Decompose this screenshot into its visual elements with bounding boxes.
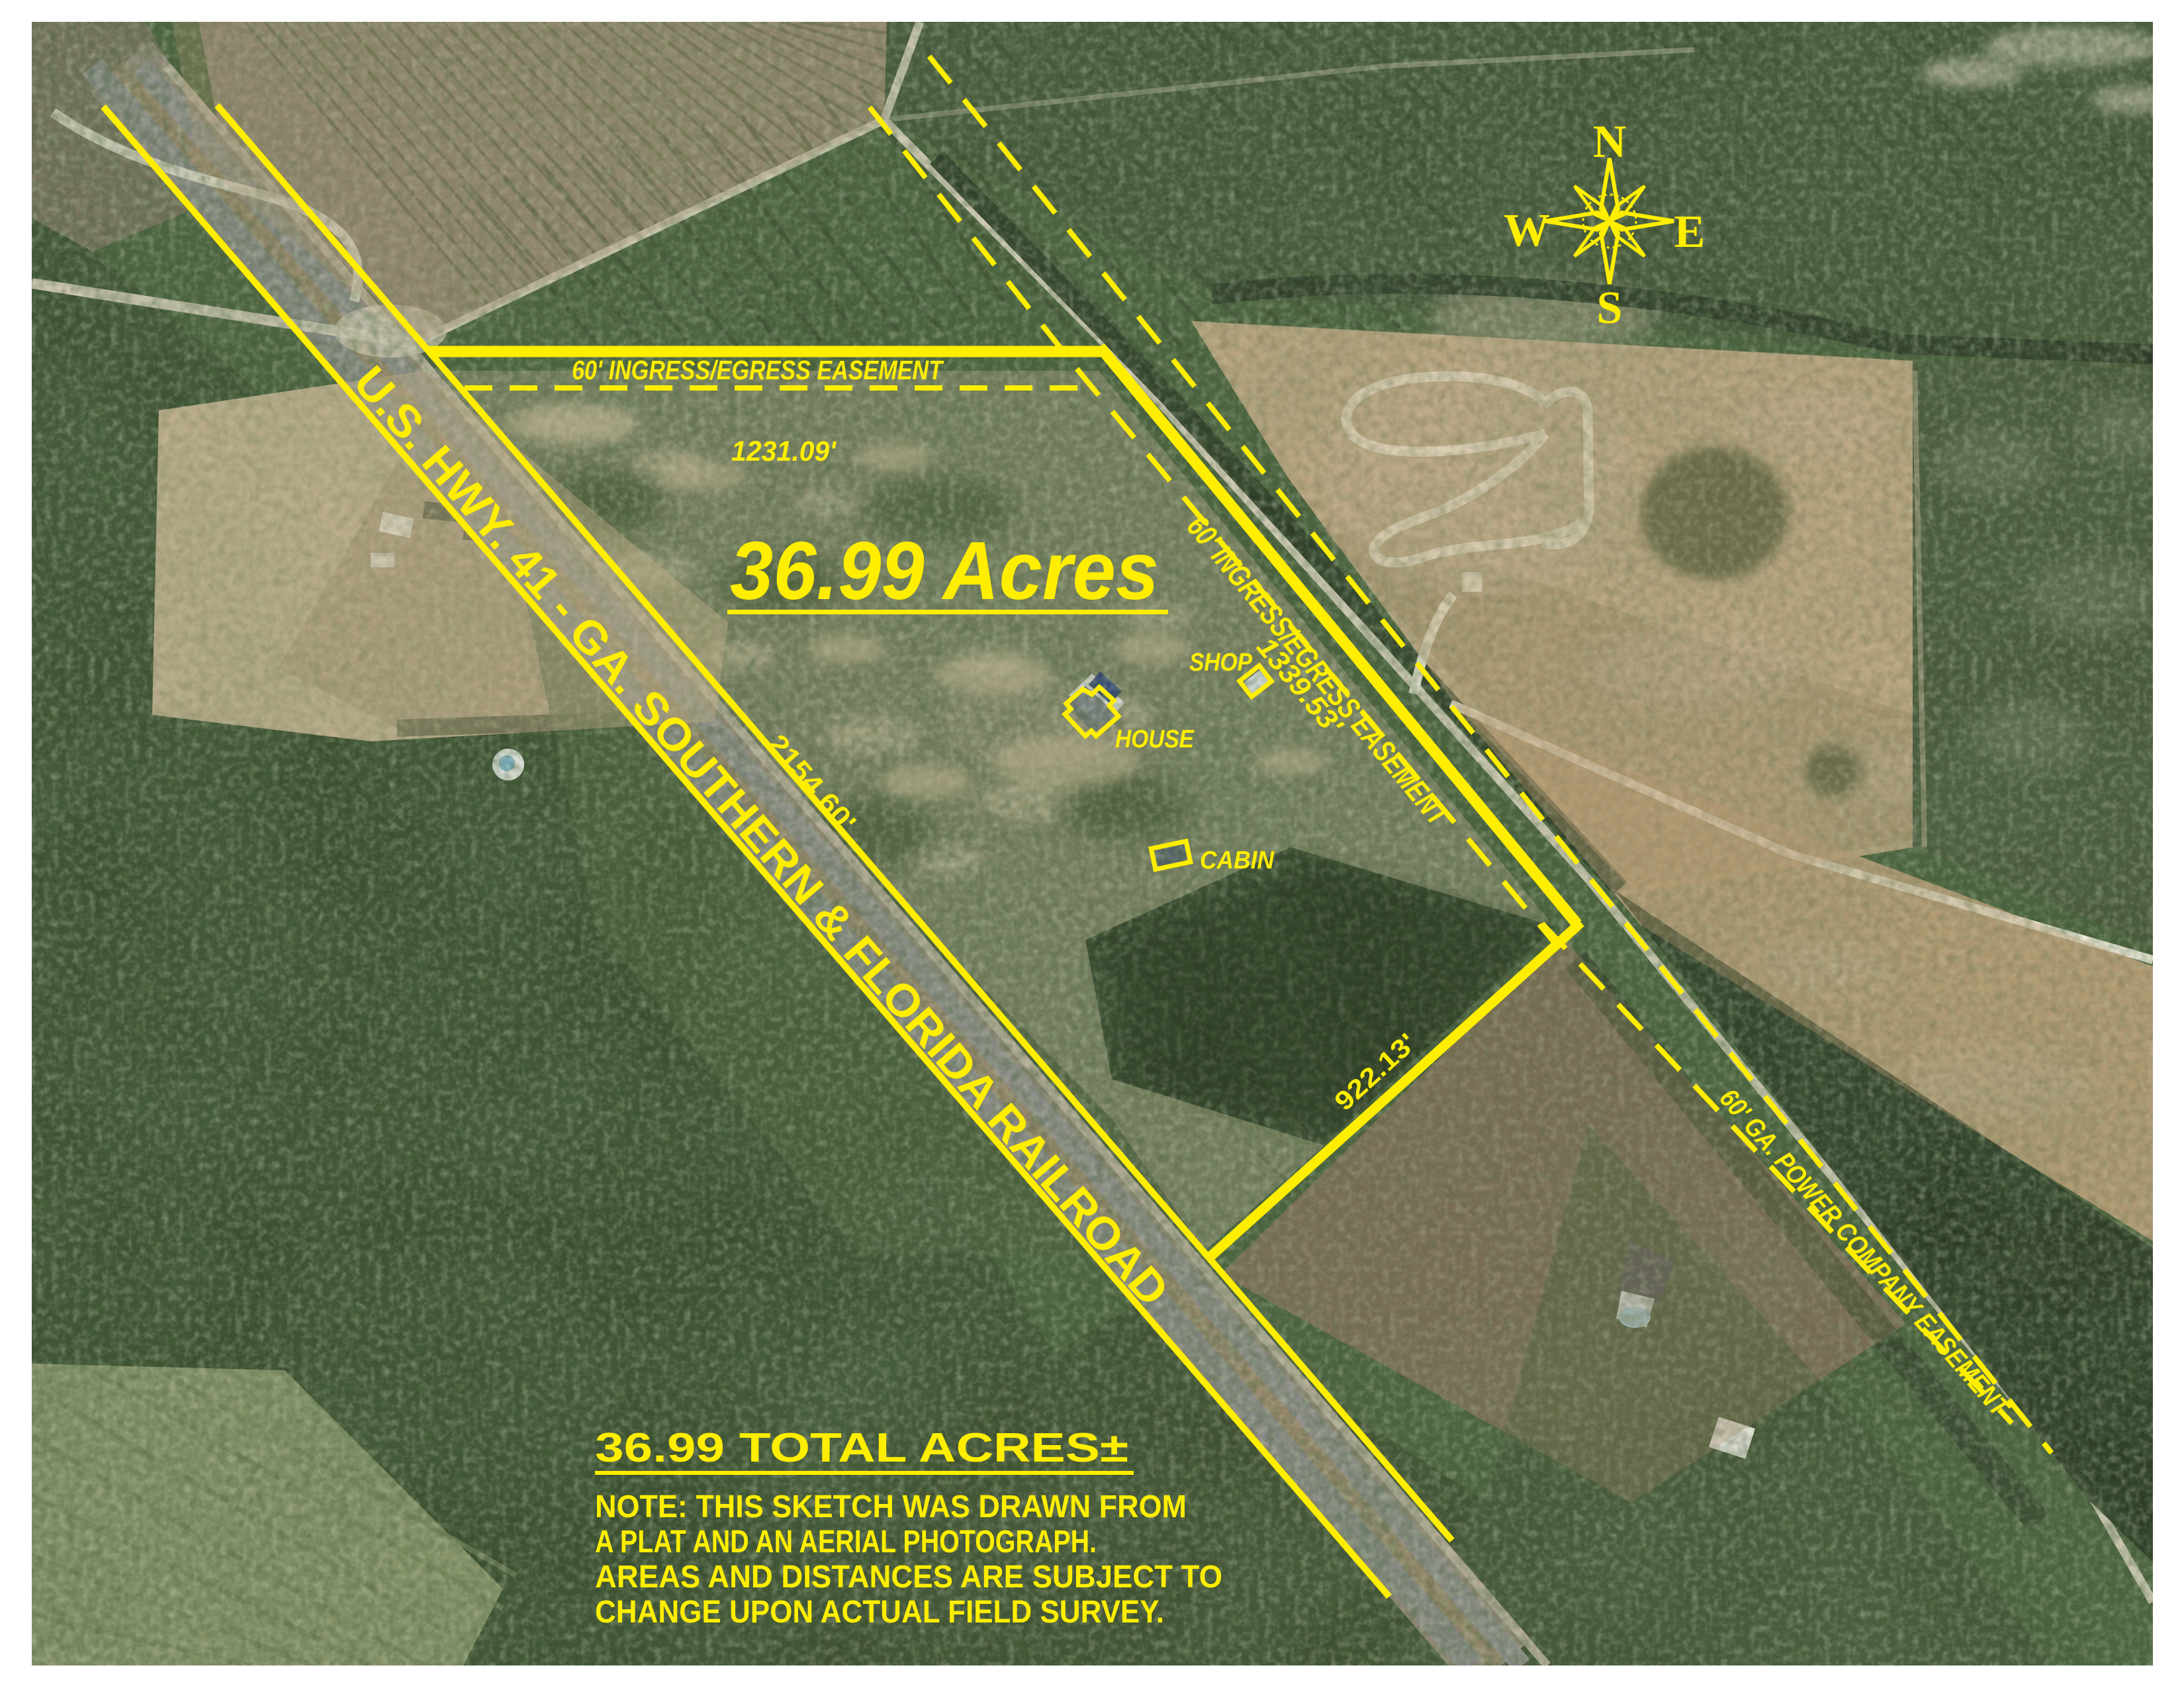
- svg-text:60' INGRESS/EGRESS EASEMENT: 60' INGRESS/EGRESS EASEMENT: [572, 355, 944, 385]
- svg-text:A PLAT AND AN AERIAL PHOTOGRAP: A PLAT AND AN AERIAL PHOTOGRAPH.: [595, 1524, 1097, 1560]
- svg-text:N: N: [1593, 117, 1627, 167]
- svg-text:E: E: [1674, 207, 1706, 258]
- svg-text:HOUSE: HOUSE: [1115, 726, 1195, 753]
- svg-text:36.99 TOTAL ACRES±: 36.99 TOTAL ACRES±: [595, 1425, 1128, 1471]
- svg-text:CHANGE UPON ACTUAL FIELD SURVE: CHANGE UPON ACTUAL FIELD SURVEY.: [595, 1595, 1164, 1630]
- svg-text:W: W: [1504, 205, 1550, 256]
- svg-text:1231.09': 1231.09': [731, 436, 837, 467]
- svg-text:S: S: [1597, 283, 1623, 334]
- svg-text:CABIN: CABIN: [1200, 847, 1275, 874]
- svg-text:AREAS AND DISTANCES ARE SUBJEC: AREAS AND DISTANCES ARE SUBJECT TO: [595, 1560, 1222, 1595]
- svg-text:36.99 Acres: 36.99 Acres: [730, 526, 1159, 617]
- svg-text:NOTE: THIS SKETCH WAS DRAWN FR: NOTE: THIS SKETCH WAS DRAWN FROM: [595, 1489, 1187, 1524]
- svg-text:SHOP: SHOP: [1189, 649, 1253, 677]
